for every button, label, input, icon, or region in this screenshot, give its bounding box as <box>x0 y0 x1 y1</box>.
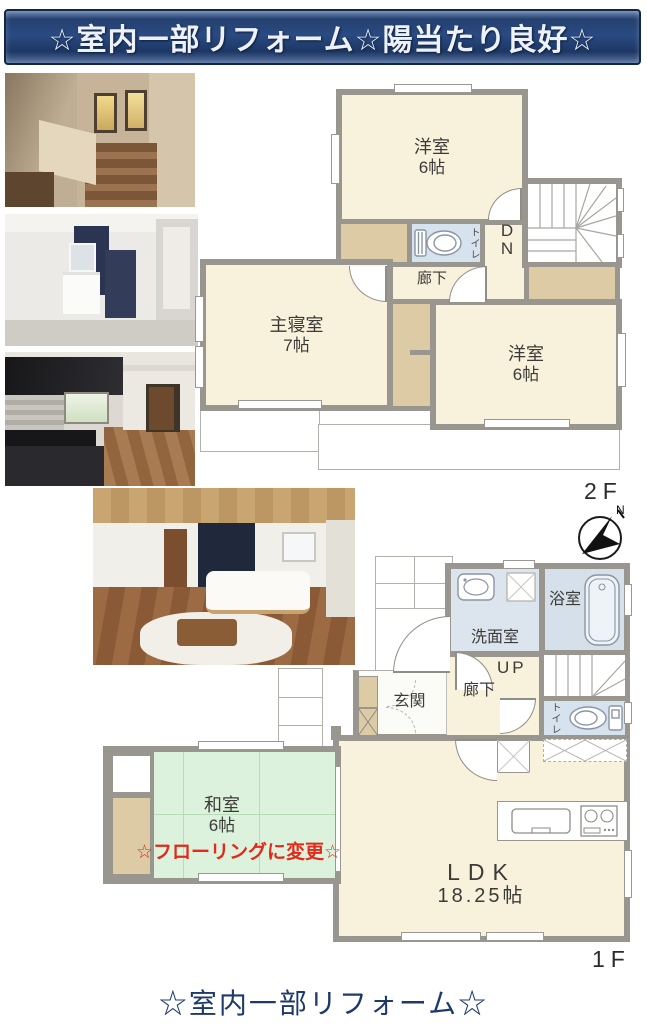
room-2f-yoshitsu-top-size: 6帖 <box>419 158 445 178</box>
living-sofa <box>206 571 311 613</box>
bathtub-icon <box>584 574 620 646</box>
washroom-inner-room <box>163 227 190 309</box>
stairs-2f-direction: DN <box>499 222 515 258</box>
stairs-1f-treads <box>544 655 625 697</box>
toilet-2f: トイレ <box>407 219 485 267</box>
stairs-1f <box>539 650 630 702</box>
photo-staircase <box>5 73 195 207</box>
kitchen-door <box>149 387 174 430</box>
window <box>331 134 340 184</box>
photo-kitchen <box>5 352 195 486</box>
window <box>617 188 624 212</box>
porch-steps <box>375 556 453 610</box>
window <box>484 419 570 428</box>
washitsu-nook <box>109 752 154 796</box>
room-2f-master-size: 7帖 <box>283 336 309 356</box>
room-2f-yoshitsu-right-name: 洋室 <box>508 344 544 365</box>
footer-note: ☆室内一部リフォーム☆ <box>0 982 647 1022</box>
floor-label-1f: 1F <box>592 946 631 973</box>
compass-icon: N <box>572 502 636 566</box>
shoe-closet <box>358 676 378 708</box>
room-1f-ldk-name: LDK <box>447 859 516 885</box>
washroom-navy-door <box>105 250 136 319</box>
room-1f-washitsu-size: 6帖 <box>209 816 235 836</box>
stairs-1f-direction: UP <box>497 658 527 678</box>
room-2f-yoshitsu-top-name: 洋室 <box>414 137 450 158</box>
kitchen-counter-plan <box>497 801 628 841</box>
window <box>401 932 481 941</box>
toilet-1f-icon <box>566 703 624 733</box>
toilet-1f: トイレ <box>539 696 630 740</box>
kitchen-floor <box>104 427 195 486</box>
window <box>198 873 284 882</box>
living-window <box>282 532 316 562</box>
sink-icon <box>457 573 495 601</box>
closet-2f-between <box>388 299 435 411</box>
kitchen-lower-cabinets <box>5 446 104 486</box>
window <box>394 84 472 93</box>
photo-living-room <box>93 488 355 665</box>
entrance-storage-icon <box>358 708 378 736</box>
window <box>617 333 626 387</box>
corridor-2f-label: 廊下 <box>417 270 447 287</box>
living-coffee-table <box>177 619 237 646</box>
window <box>624 702 632 724</box>
window <box>238 400 322 409</box>
window <box>624 584 632 616</box>
window <box>624 850 632 898</box>
kitchen-window <box>64 392 110 424</box>
room-2f-master-name: 主寝室 <box>270 315 324 336</box>
room-2f-yoshitsu-right: 洋室 6帖 <box>430 299 622 430</box>
room-1f-ldk-size: 18.25帖 <box>437 885 525 908</box>
living-right-wall <box>326 520 355 617</box>
header-banner: ☆室内一部リフォーム☆陽当たり良好☆ <box>4 9 641 65</box>
washroom-floor <box>5 320 198 346</box>
renovation-note: ☆フローリングに変更☆ <box>136 837 341 864</box>
window <box>503 560 535 569</box>
corridor-1f-label: 廊下 <box>463 682 495 700</box>
window <box>617 234 624 258</box>
approach-steps <box>278 668 323 750</box>
living-door <box>164 529 188 593</box>
vanity-cabinet <box>63 272 100 314</box>
header-title: ☆室内一部リフォーム☆陽当たり良好☆ <box>49 15 597 59</box>
kitchen-backsplash <box>5 395 64 433</box>
room-1f-washitsu-name: 和室 <box>204 795 240 816</box>
kitchen-upper-cabinets <box>5 357 123 395</box>
flyer-page: ☆室内一部リフォーム☆陽当たり良好☆ <box>0 0 647 1024</box>
counter-hatch <box>543 739 627 762</box>
wall-stub-2f <box>410 350 435 355</box>
room-2f-yoshitsu-right-size: 6帖 <box>513 365 539 385</box>
window <box>486 932 544 941</box>
balcony-2f-left <box>200 406 320 452</box>
stairs-2f-treads <box>528 184 616 262</box>
room-1f-bath-label: 浴室 <box>549 591 581 609</box>
room-1f-washroom: 洗面室 <box>445 563 545 657</box>
window <box>195 346 204 388</box>
washer-icon <box>506 572 536 602</box>
washitsu-closet <box>109 794 154 878</box>
stove-icon <box>580 805 618 837</box>
living-wood-ceiling <box>93 488 355 523</box>
compass-north-label: N <box>616 503 625 517</box>
stair-floor <box>5 172 54 207</box>
toilet-2f-label: トイレ <box>466 227 481 260</box>
floor-label-2f: 2F <box>584 478 623 505</box>
stair-window-1 <box>94 93 117 133</box>
window <box>198 741 284 750</box>
toilet-1f-label: トイレ <box>547 702 562 735</box>
photo-washroom <box>5 214 198 346</box>
kitchen-sink-icon <box>510 806 572 836</box>
stairs-2f <box>522 178 622 268</box>
window <box>195 296 204 342</box>
vanity-mirror <box>69 243 96 272</box>
balcony-2f-right <box>318 424 620 470</box>
ldk-storage-icon <box>497 740 530 773</box>
stair-window-2 <box>125 90 148 130</box>
room-1f-washroom-label: 洗面室 <box>471 629 519 647</box>
toilet-2f-icon <box>414 227 464 259</box>
room-1f-bath: 浴室 <box>539 563 630 657</box>
wall-connector <box>331 726 341 740</box>
